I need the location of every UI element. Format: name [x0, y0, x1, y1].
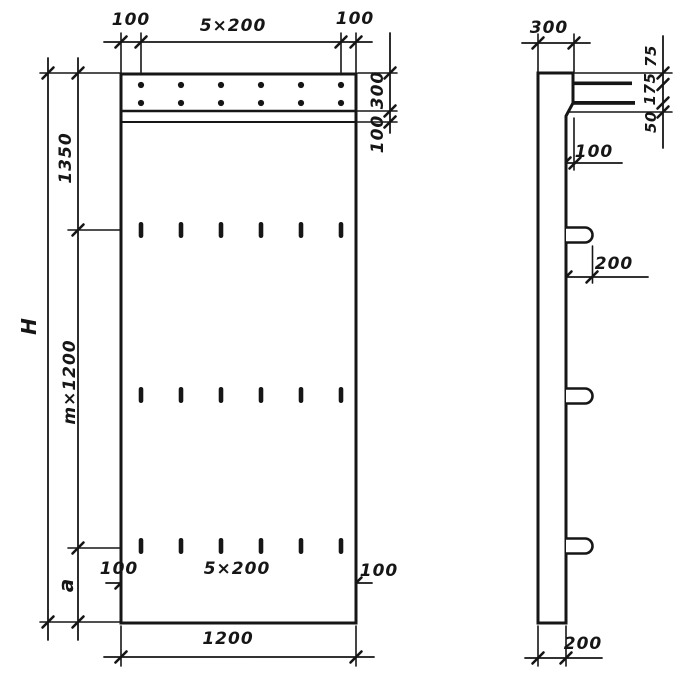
panel-body: [121, 74, 356, 623]
dim-H-total: H: [17, 317, 41, 335]
dim-1200-width: 1200: [202, 629, 253, 649]
dim-a: a: [54, 578, 78, 593]
dim-1350: 1350: [56, 132, 76, 183]
dim-100-bottom-right: 100: [360, 561, 399, 581]
dim-100-bottom-left: 100: [100, 559, 139, 579]
dim-300-band: 300: [368, 71, 388, 110]
drawing-sheet: 100 5×200 100 300 100 H 1350 m×1200 a 10…: [0, 0, 700, 700]
dim-100-strip: 100: [368, 115, 388, 154]
dim-50-edge: 50: [642, 111, 660, 133]
dim-5x200-bottom: 5×200: [204, 559, 271, 579]
dim-100-face-offset: 100: [575, 142, 614, 162]
dim-5x200-top: 5×200: [200, 16, 267, 36]
panel-drawing: [0, 0, 700, 700]
dim-200-thickness: 200: [564, 634, 603, 654]
dim-300-side-top: 300: [530, 18, 569, 38]
dim-100-top-left: 100: [112, 10, 151, 30]
dim-100-top-right: 100: [336, 9, 375, 29]
dim-175-edge: 175: [641, 73, 659, 106]
dim-m-x-1200: m×1200: [60, 339, 80, 424]
dim-75-edge: 75: [642, 45, 660, 67]
dim-200-loop: 200: [595, 254, 634, 274]
rebar-stubs: [573, 82, 635, 105]
